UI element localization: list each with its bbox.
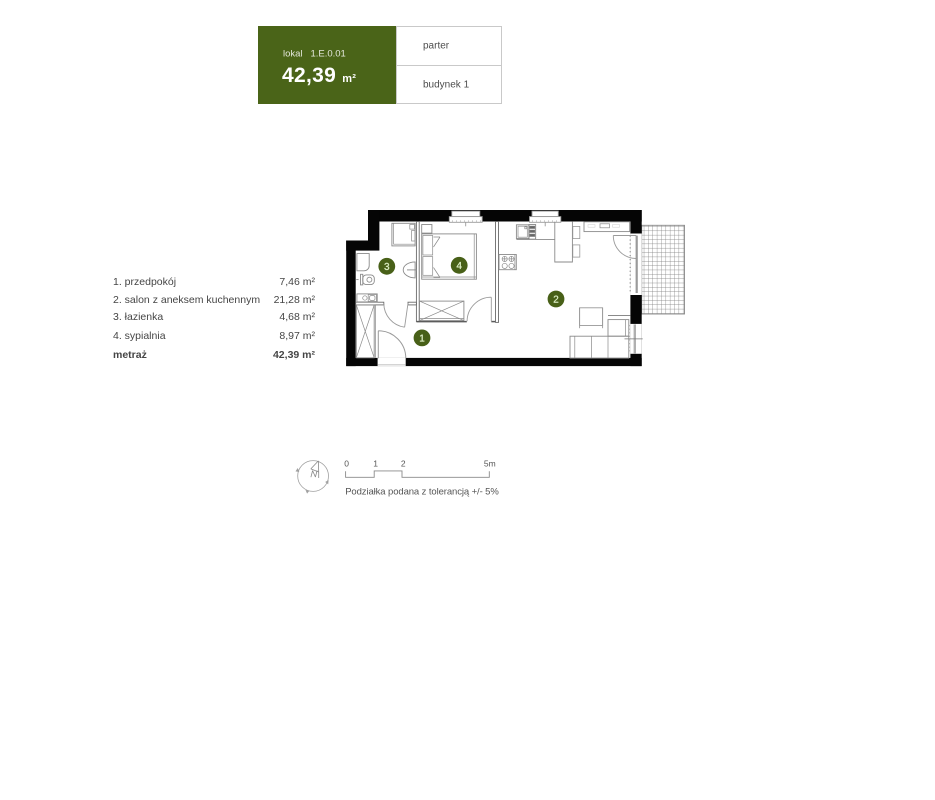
svg-text:1: 1 — [373, 459, 378, 469]
svg-text:Podziałka podana z tolerancją: Podziałka podana z tolerancją +/- 5% — [345, 486, 499, 497]
svg-text:0: 0 — [344, 459, 349, 469]
svg-text:2: 2 — [401, 459, 406, 469]
svg-text:5m: 5m — [484, 459, 496, 469]
